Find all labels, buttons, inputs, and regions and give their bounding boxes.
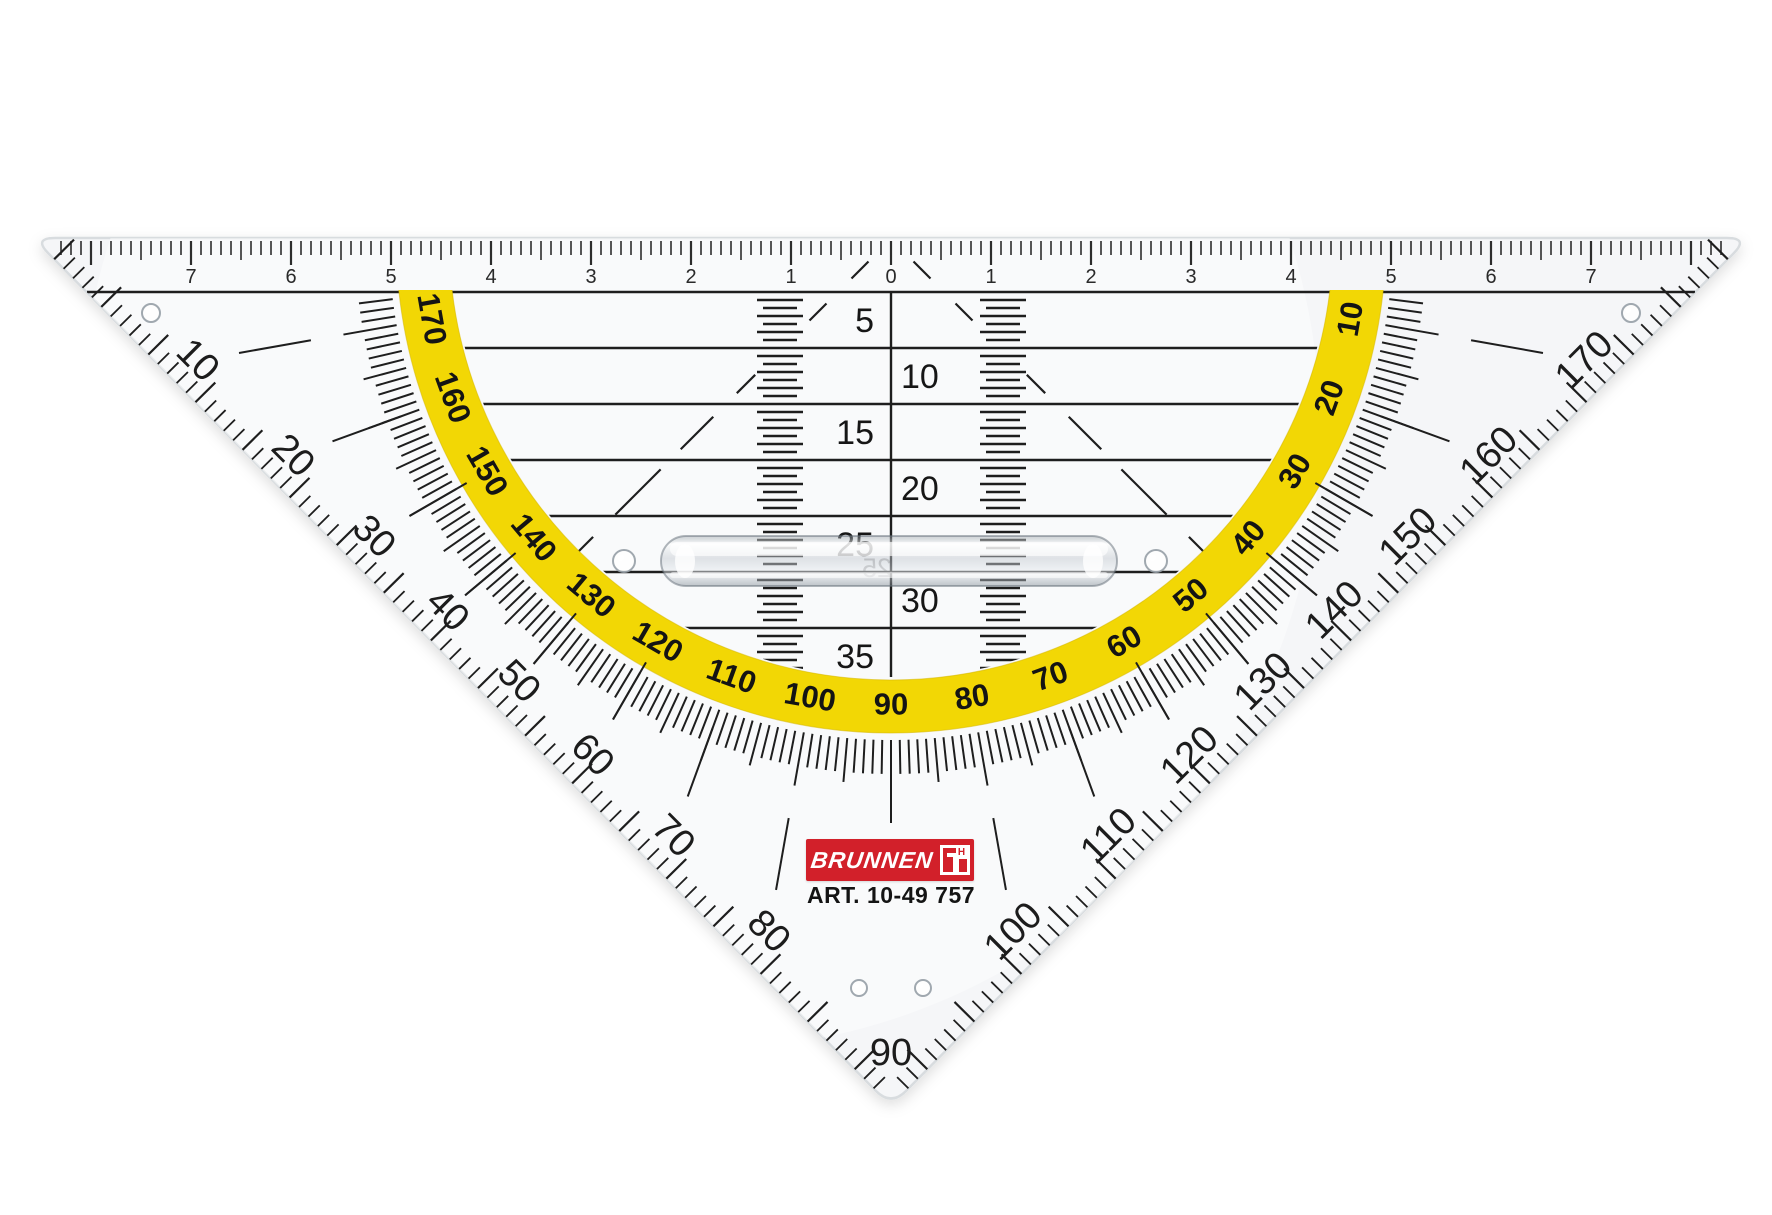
svg-text:7: 7: [185, 266, 196, 288]
svg-text:0: 0: [885, 266, 896, 288]
svg-text:5: 5: [855, 302, 874, 340]
svg-text:10: 10: [1330, 299, 1370, 339]
svg-text:3: 3: [585, 266, 596, 288]
svg-text:1: 1: [785, 266, 796, 288]
brand-mark-letter: H: [956, 847, 968, 859]
svg-text:15: 15: [836, 414, 874, 452]
brand-logo: BRUNNEN H: [806, 839, 974, 881]
svg-text:3: 3: [1185, 266, 1196, 288]
svg-text:10: 10: [901, 358, 939, 396]
svg-text:6: 6: [285, 266, 296, 288]
geo-triangle-drawing: 7654321012345675101520253035102030405060…: [0, 0, 1772, 1215]
svg-text:2: 2: [1085, 266, 1096, 288]
svg-text:4: 4: [1285, 266, 1296, 288]
svg-text:5: 5: [385, 266, 396, 288]
svg-text:30: 30: [901, 582, 939, 620]
geo-triangle-product-photo: 7654321012345675101520253035102030405060…: [0, 0, 1772, 1215]
svg-text:6: 6: [1485, 266, 1496, 288]
brand-logo-text: BRUNNEN: [809, 849, 934, 872]
brand-mark-slot-v: [953, 857, 959, 872]
svg-text:20: 20: [901, 470, 939, 508]
svg-text:1: 1: [985, 266, 996, 288]
svg-text:5: 5: [1385, 266, 1396, 288]
svg-text:90: 90: [870, 1032, 912, 1074]
svg-text:35: 35: [836, 638, 874, 676]
svg-text:90: 90: [874, 687, 908, 722]
svg-text:2: 2: [685, 266, 696, 288]
svg-text:7: 7: [1585, 266, 1596, 288]
svg-text:80: 80: [952, 677, 992, 717]
brand-logo-mark-icon: H: [940, 845, 970, 875]
article-number: ART. 10-49 757: [711, 882, 1071, 909]
grip-handle: [661, 536, 1117, 586]
svg-text:4: 4: [485, 266, 496, 288]
